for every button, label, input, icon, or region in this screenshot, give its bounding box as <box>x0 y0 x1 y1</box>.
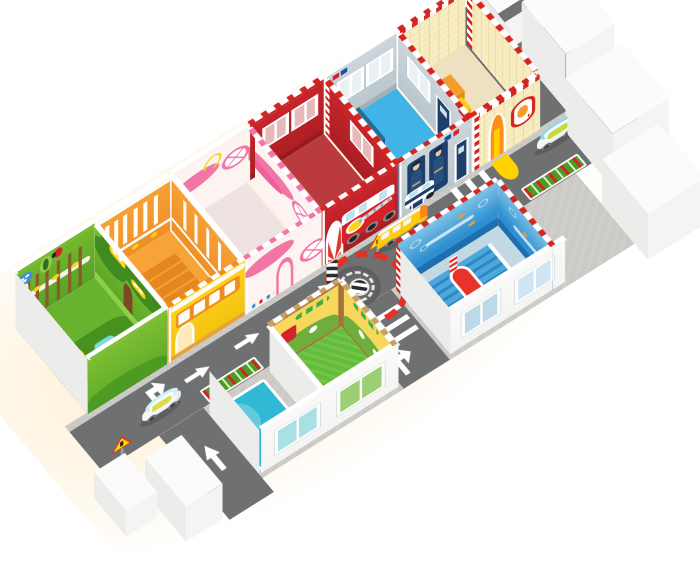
bubble <box>509 205 517 221</box>
slat <box>218 241 221 273</box>
slat <box>183 200 186 232</box>
pole <box>68 252 71 294</box>
pole <box>57 259 60 301</box>
bubble <box>478 196 489 209</box>
slat <box>123 214 127 245</box>
slat <box>133 207 137 238</box>
slat <box>154 194 158 225</box>
food-plaque <box>511 92 535 133</box>
window <box>291 93 318 132</box>
bus-window <box>194 299 205 316</box>
window <box>366 47 393 87</box>
slat <box>195 213 198 245</box>
fish <box>468 220 475 228</box>
officer-body <box>433 154 444 187</box>
pole <box>79 245 82 287</box>
slat <box>144 201 148 232</box>
porthole-window <box>222 140 250 174</box>
striped-edge <box>396 245 400 295</box>
red-dash-edge <box>467 0 472 50</box>
bus-window <box>209 289 220 306</box>
slat <box>206 227 209 259</box>
playground-render <box>0 0 700 582</box>
pole <box>46 266 49 308</box>
striped-corner <box>475 113 480 171</box>
bus-window <box>224 280 235 297</box>
